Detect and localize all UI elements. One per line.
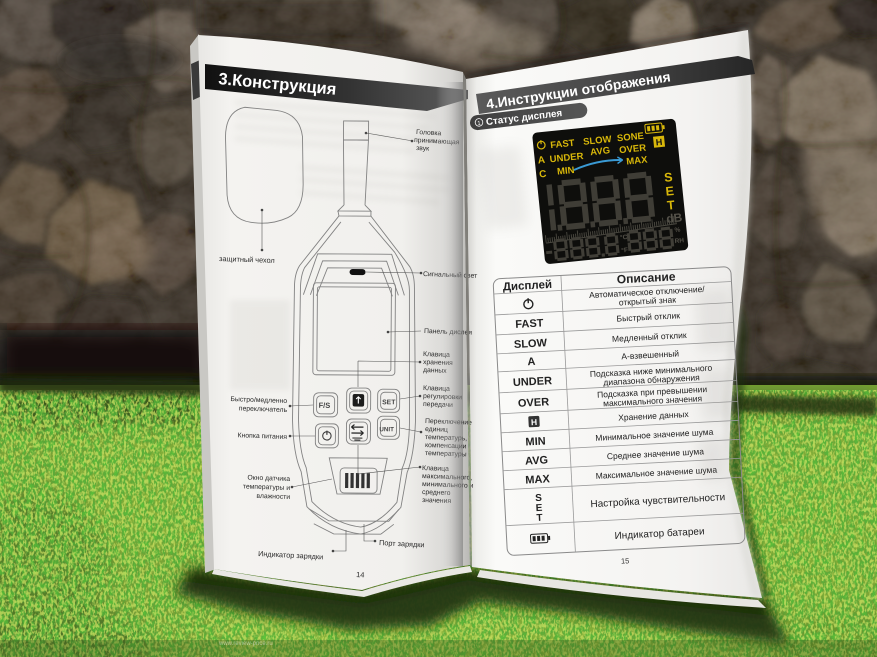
svg-text:MAX: MAX [626, 154, 649, 167]
svg-text:C: C [539, 169, 547, 181]
svg-text:Быстрый отклик: Быстрый отклик [616, 310, 680, 323]
svg-text:А-взвешенный: А-взвешенный [621, 348, 679, 361]
svg-text:°F: °F [621, 246, 628, 255]
svg-text:S: S [664, 170, 674, 185]
svg-text:Максимальное значение шума: Максимальное значение шума [595, 465, 717, 481]
svg-text:T: T [536, 513, 543, 524]
svg-text:Индикатор батареи: Индикатор батареи [614, 525, 705, 542]
svg-text:Индикатор зарядки: Индикатор зарядки [258, 549, 324, 561]
svg-text:SET: SET [382, 399, 396, 406]
svg-text:A: A [537, 155, 545, 167]
svg-text:H: H [531, 417, 538, 427]
svg-text:Кнопка питания: Кнопка питания [237, 432, 287, 441]
svg-text:E: E [665, 184, 675, 199]
svg-text:UNDER: UNDER [513, 375, 553, 389]
svg-text:15: 15 [621, 556, 630, 565]
svg-text:%: % [674, 227, 681, 235]
svg-text:Порт зарядки: Порт зарядки [379, 538, 425, 549]
svg-text:Хранение данных: Хранение данных [618, 409, 690, 423]
svg-text:14: 14 [356, 570, 365, 579]
svg-text:MAX: MAX [525, 473, 551, 486]
svg-text:MIN: MIN [557, 165, 576, 178]
svg-text:MIN: MIN [525, 435, 546, 448]
svg-text:температуры и: температуры и [243, 483, 291, 492]
svg-text:RH: RH [674, 237, 684, 245]
svg-text:Описание: Описание [616, 269, 676, 286]
svg-text:Медленный отклик: Медленный отклик [612, 330, 687, 344]
svg-text:защитный чехол: защитный чехол [219, 254, 275, 265]
svg-text:OVER: OVER [518, 396, 550, 410]
svg-text:AVG: AVG [525, 454, 549, 467]
svg-text:SLOW: SLOW [514, 337, 548, 351]
svg-text:H: H [655, 137, 662, 148]
svg-text:A: A [527, 356, 536, 368]
svg-text:FAST: FAST [515, 317, 544, 330]
svg-text:AVG: AVG [590, 145, 611, 158]
svg-text:UNIT: UNIT [379, 426, 394, 433]
svg-text:www.review-price.ru: www.review-price.ru [218, 641, 273, 647]
svg-text:Настройка чувствительности: Настройка чувствительности [590, 492, 725, 510]
svg-text:переключатель: переключатель [239, 405, 288, 414]
svg-text:Быстро/медленно: Быстро/медленно [230, 396, 287, 405]
svg-text:°C: °C [620, 233, 628, 242]
svg-text:влажности: влажности [256, 493, 290, 501]
svg-text:Минимальное значение шума: Минимальное значение шума [595, 427, 714, 443]
svg-text:Среднее значение шума: Среднее значение шума [607, 446, 705, 461]
svg-text:F/S: F/S [319, 401, 331, 410]
svg-text:звук: звук [416, 145, 429, 153]
svg-text:Окно датчика: Окно датчика [247, 475, 290, 483]
svg-text:dB: dB [666, 210, 684, 226]
